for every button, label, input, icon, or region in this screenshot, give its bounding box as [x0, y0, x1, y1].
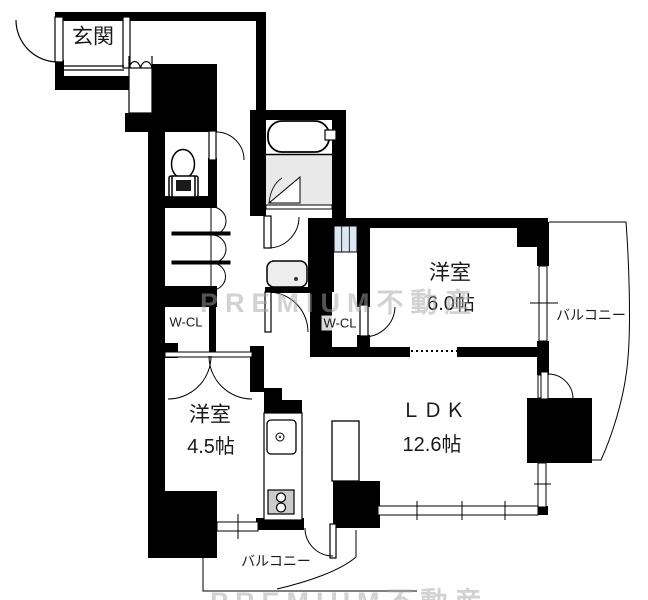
wcl-right-door-leaf — [360, 305, 368, 336]
shoe-cabinet — [129, 56, 152, 113]
kitchen-sink-icon — [267, 420, 296, 454]
sliding-opening — [410, 346, 457, 358]
toilet-icon — [169, 150, 198, 198]
label-ldk-size: 12.6帖 — [401, 434, 464, 456]
toilet-door-leaf — [209, 131, 216, 160]
washing-machine-space — [334, 226, 357, 252]
label-western45-name: 洋室 — [187, 404, 233, 427]
toilet-room — [169, 131, 244, 197]
label-balcony-right: バルコニー — [554, 307, 628, 323]
washroom-door-arc — [268, 217, 299, 248]
washroom-door-leaf — [264, 216, 271, 248]
label-western6-name: 洋室 — [427, 262, 473, 285]
hall-ldk-door — [265, 292, 308, 332]
label-western6-size: 6.0帖 — [425, 293, 477, 315]
ldk-east-door-leaf — [541, 372, 548, 399]
washbasin-icon — [267, 261, 307, 287]
ldk-east-door-arc — [548, 374, 573, 399]
hall-closet-shelves — [172, 207, 230, 290]
western45-doors — [165, 352, 252, 399]
label-wcl-left: W-CL — [168, 315, 205, 330]
label-western45-size: 4.5帖 — [185, 436, 237, 458]
floor-plan: 玄関 洋室 6.0帖 洋室 4.5帖 ＬＤＫ 12.6帖 W-CL W-CL バ… — [0, 0, 648, 600]
entrance-door-arc — [16, 20, 58, 62]
bathtub-icon — [268, 121, 336, 152]
label-balcony-bottom: バルコニー — [239, 553, 313, 569]
hall-door-arc — [268, 292, 308, 332]
gas-stove-icon — [268, 490, 294, 514]
wcl-right-door-arc — [364, 307, 395, 337]
label-genkan: 玄関 — [70, 26, 116, 49]
entrance-door-leaf — [55, 17, 63, 62]
south-door-leaf — [330, 524, 336, 558]
hall-door-leaf — [265, 292, 271, 332]
window-south-ldk — [378, 506, 538, 515]
label-wcl-right: W-CL — [322, 316, 359, 331]
wcl-right-door — [360, 305, 395, 337]
window-east-ldk — [538, 463, 546, 507]
label-ldk-name: ＬＤＫ — [399, 400, 469, 422]
toilet-door-arc — [216, 132, 244, 160]
kitchen-island-counter — [332, 421, 359, 481]
floor-plan-drawing — [0, 0, 648, 600]
south-door-arc — [305, 528, 333, 556]
